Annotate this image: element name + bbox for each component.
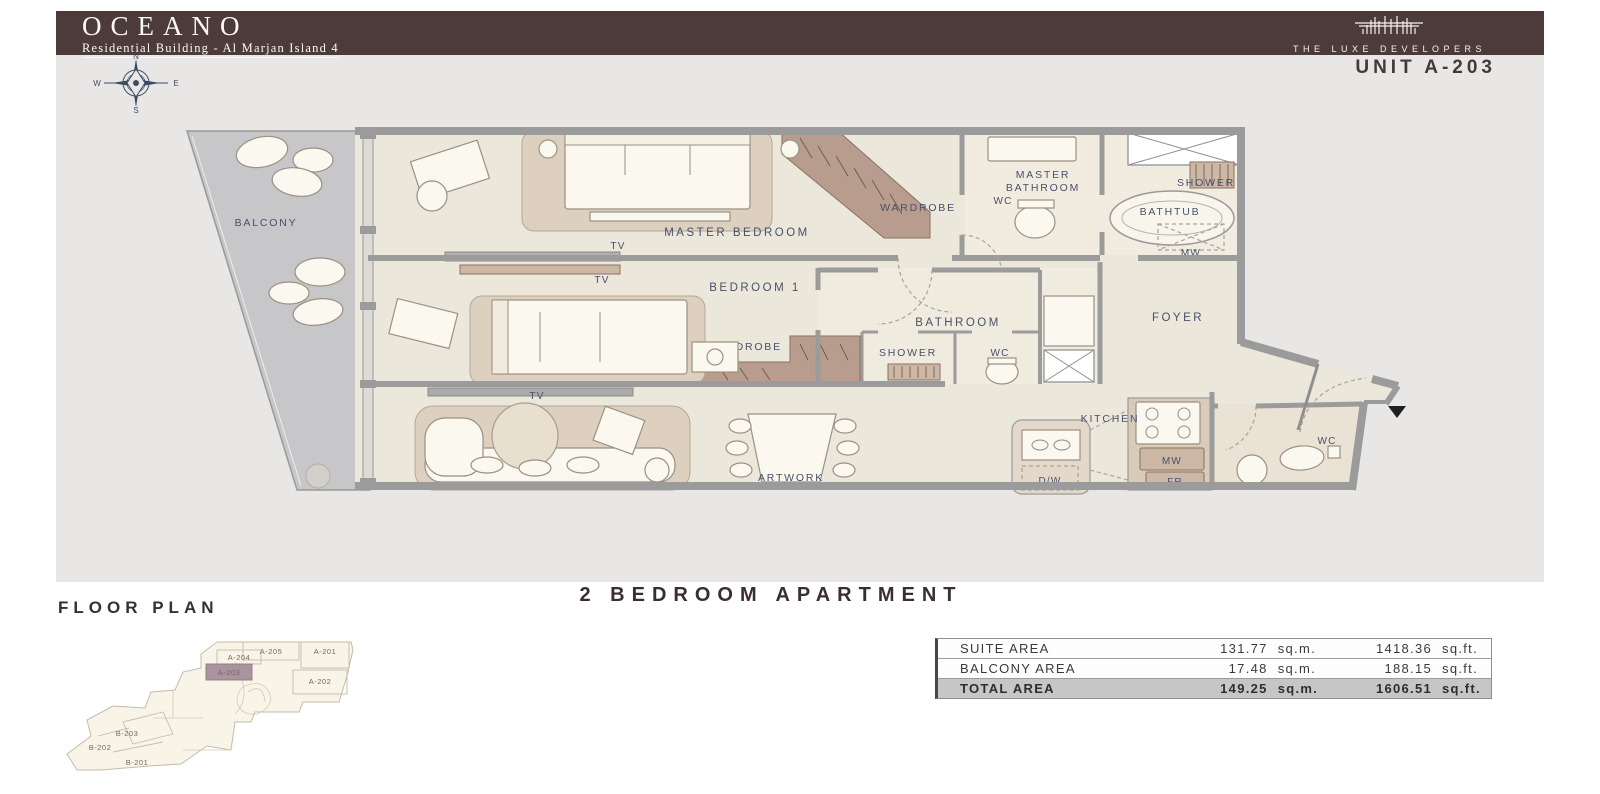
mini-unit-a202: A-202 <box>309 677 332 686</box>
balcony-area-sqm: 17.48 <box>1180 661 1268 676</box>
balcony-area-sqft-unit: sq.ft. <box>1432 661 1491 676</box>
apartment-type-title: 2 BEDROOM APARTMENT <box>56 584 1486 607</box>
total-area-sqm-unit: sq.m. <box>1268 681 1335 696</box>
wc-master-label: WC <box>993 196 1012 207</box>
compass-e: E <box>173 79 178 88</box>
suite-area-sqft-unit: sq.ft. <box>1432 641 1491 656</box>
master-bedroom-label: MASTER BEDROOM <box>664 227 810 239</box>
shower-master-label: SHOWER <box>1177 177 1235 189</box>
mini-unit-b203: B-203 <box>116 729 139 738</box>
suite-area-sqft: 1418.36 <box>1335 641 1432 656</box>
balcony-area-sqm-unit: sq.m. <box>1268 661 1335 676</box>
master-bathroom-label-2: BATHROOM <box>1006 182 1080 194</box>
compass-n: N <box>133 52 139 61</box>
suite-area-sqm-unit: sq.m. <box>1268 641 1335 656</box>
kitchen-label: KITCHEN <box>1081 413 1140 425</box>
total-area-sqft-unit: sq.ft. <box>1432 681 1491 696</box>
mini-unit-b201: B-201 <box>126 758 149 767</box>
total-area-sqft: 1606.51 <box>1335 681 1432 696</box>
suite-area-sqm: 131.77 <box>1180 641 1268 656</box>
entrance-arrow <box>1388 406 1406 418</box>
area-table: SUITE AREA 131.77 sq.m. 1418.36 sq.ft. B… <box>935 638 1492 699</box>
total-area-sqm: 149.25 <box>1180 681 1268 696</box>
wc-bathroom-label: WC <box>990 348 1009 359</box>
brand-logo: OCEANO <box>82 13 339 39</box>
guest-wc-floor <box>1212 404 1364 490</box>
balcony-area-label: BALCONY AREA <box>938 661 1180 676</box>
mw-kitchen-label: MW <box>1162 456 1182 467</box>
master-wardrobe-label: WARDROBE <box>880 202 956 214</box>
bathroom-label: BATHROOM <box>915 317 1001 329</box>
master-bathroom-label-1: MASTER <box>1016 169 1071 181</box>
floor-plan-heading: FLOOR PLAN <box>58 598 219 618</box>
bedroom1-label: BEDROOM 1 <box>709 282 801 294</box>
tv-living-label: TV <box>529 391 544 402</box>
tv-bedroom1-label: TV <box>594 275 609 286</box>
mini-unit-a205: A-205 <box>260 647 283 656</box>
mini-unit-a204: A-204 <box>228 653 251 662</box>
floor-plan-drawing: BALCONY WARDROBE WARDROBE <box>170 120 1416 592</box>
total-area-label: TOTAL AREA <box>938 681 1180 696</box>
developer-skyline-icon <box>1341 15 1437 37</box>
balcony-area-sqft: 188.15 <box>1335 661 1432 676</box>
mini-unit-a201: A-201 <box>314 647 337 656</box>
developer-name: THE LUXE DEVELOPERS <box>1293 44 1486 54</box>
foyer-label: FOYER <box>1152 312 1204 324</box>
suite-area-row: SUITE AREA 131.77 sq.m. 1418.36 sq.ft. <box>938 639 1491 658</box>
compass-rose: N S W E <box>88 52 184 114</box>
mini-unit-b202: B-202 <box>89 743 112 752</box>
wc-guest-label: WC <box>1317 436 1336 447</box>
suite-area-label: SUITE AREA <box>938 641 1180 656</box>
compass-w: W <box>93 79 101 88</box>
compass-s: S <box>133 106 138 114</box>
mini-floor-plan: A-205 A-201 A-204 A-203 A-202 B-203 B-20… <box>58 620 368 780</box>
developer-block: THE LUXE DEVELOPERS <box>1293 15 1486 54</box>
header-bar: OCEANO Residential Building - Al Marjan … <box>56 11 1544 55</box>
tv-master-label: TV <box>610 241 625 252</box>
balcony-area: BALCONY <box>187 131 370 490</box>
balcony-label: BALCONY <box>235 217 298 229</box>
balcony-area-row: BALCONY AREA 17.48 sq.m. 188.15 sq.ft. <box>938 658 1491 678</box>
mini-unit-a203: A-203 <box>218 668 241 677</box>
total-area-row: TOTAL AREA 149.25 sq.m. 1606.51 sq.ft. <box>938 678 1491 698</box>
shower-label: SHOWER <box>879 347 937 359</box>
bathtub-label: BATHTUB <box>1140 206 1201 218</box>
unit-number: UNIT A-203 <box>1355 57 1496 79</box>
